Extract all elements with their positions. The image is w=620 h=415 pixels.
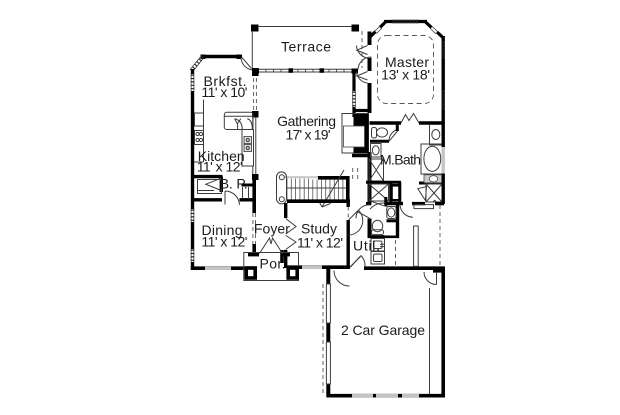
svg-text:M.Bath: M.Bath xyxy=(380,152,421,168)
svg-text:13' x 18': 13' x 18' xyxy=(381,67,430,83)
svg-text:2 Car Garage: 2 Car Garage xyxy=(341,322,425,338)
svg-text:Util.: Util. xyxy=(353,238,380,254)
svg-text:11' x 12': 11' x 12' xyxy=(297,235,343,251)
svg-text:11' x 10': 11' x 10' xyxy=(201,84,247,100)
svg-text:Terrace: Terrace xyxy=(281,39,331,55)
svg-text:B. P.: B. P. xyxy=(220,176,248,192)
svg-text:11' x 12': 11' x 12' xyxy=(197,159,243,175)
svg-text:11' x 12': 11' x 12' xyxy=(201,234,247,250)
svg-text:17' x 19': 17' x 19' xyxy=(286,127,331,143)
svg-text:Foyer: Foyer xyxy=(254,221,290,237)
svg-text:Por.: Por. xyxy=(260,256,286,272)
